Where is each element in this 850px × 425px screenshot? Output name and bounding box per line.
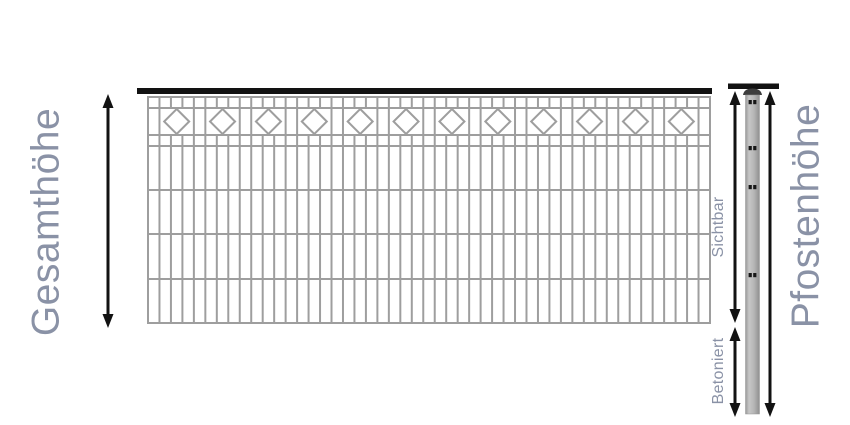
fence-panel <box>147 96 711 324</box>
concreted-part-label: Betoniert <box>711 338 727 405</box>
concreted-depth-arrow-icon <box>730 327 741 417</box>
fence-top-rail <box>137 88 712 94</box>
visible-height-arrow-icon <box>730 91 741 323</box>
total-height-arrow-icon <box>103 94 114 328</box>
total-height-label: Gesamthöhe <box>27 108 66 336</box>
fence-diagram: Gesamthöhe Sichtbar Betoniert Pfostenhöh… <box>0 0 850 425</box>
visible-part-label: Sichtbar <box>711 196 727 257</box>
post-height-arrow-icon <box>765 91 776 417</box>
post-height-label: Pfostenhöhe <box>787 104 826 329</box>
